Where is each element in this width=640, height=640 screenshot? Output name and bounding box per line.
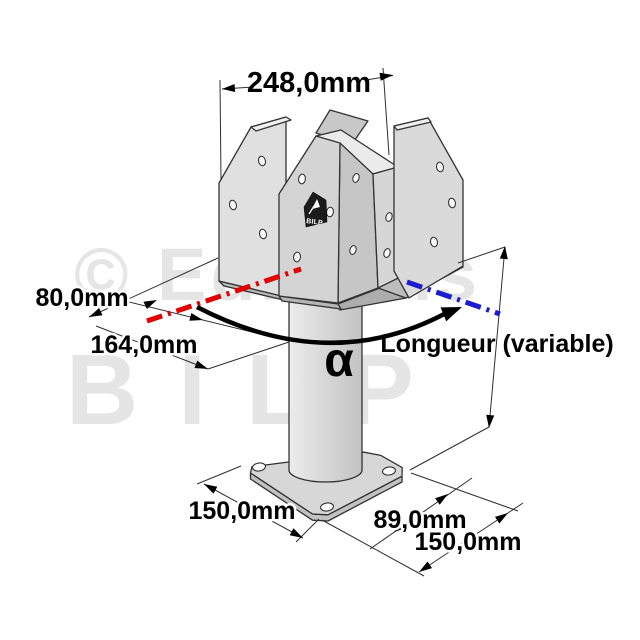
arrowhead [204, 484, 217, 494]
arrowhead [435, 494, 448, 505]
dim-label-base-left: 150,0mm [188, 497, 295, 525]
witness-line [296, 519, 319, 542]
witness-line [197, 466, 241, 484]
arrowhead [222, 84, 235, 92]
dim-label-seat-width: 80,0mm [35, 284, 128, 312]
witness-line [220, 80, 221, 180]
arrowhead [419, 562, 432, 573]
post-bracket-technical-drawing: © Editions BILP [0, 0, 640, 640]
arrowhead [495, 513, 508, 524]
diagram-canvas: © Editions BILP [0, 0, 640, 640]
arrowhead [486, 415, 494, 428]
dim-label-top-width: 248,0mm [247, 67, 371, 99]
post-cylinder-body [289, 301, 362, 482]
arrowhead [290, 528, 303, 538]
length-variable-label: Longueur (variable) [380, 330, 613, 358]
dim-label-base-right: 150,0mm [414, 528, 521, 556]
post-cylinder [289, 301, 362, 482]
dim-label-overall-width: 164,0mm [90, 331, 197, 359]
angle-symbol-label: α [324, 334, 354, 387]
arrowhead [380, 73, 394, 81]
witness-line [383, 68, 389, 155]
left-channel-plate [219, 117, 286, 297]
bracket-head: BILP [219, 110, 463, 310]
